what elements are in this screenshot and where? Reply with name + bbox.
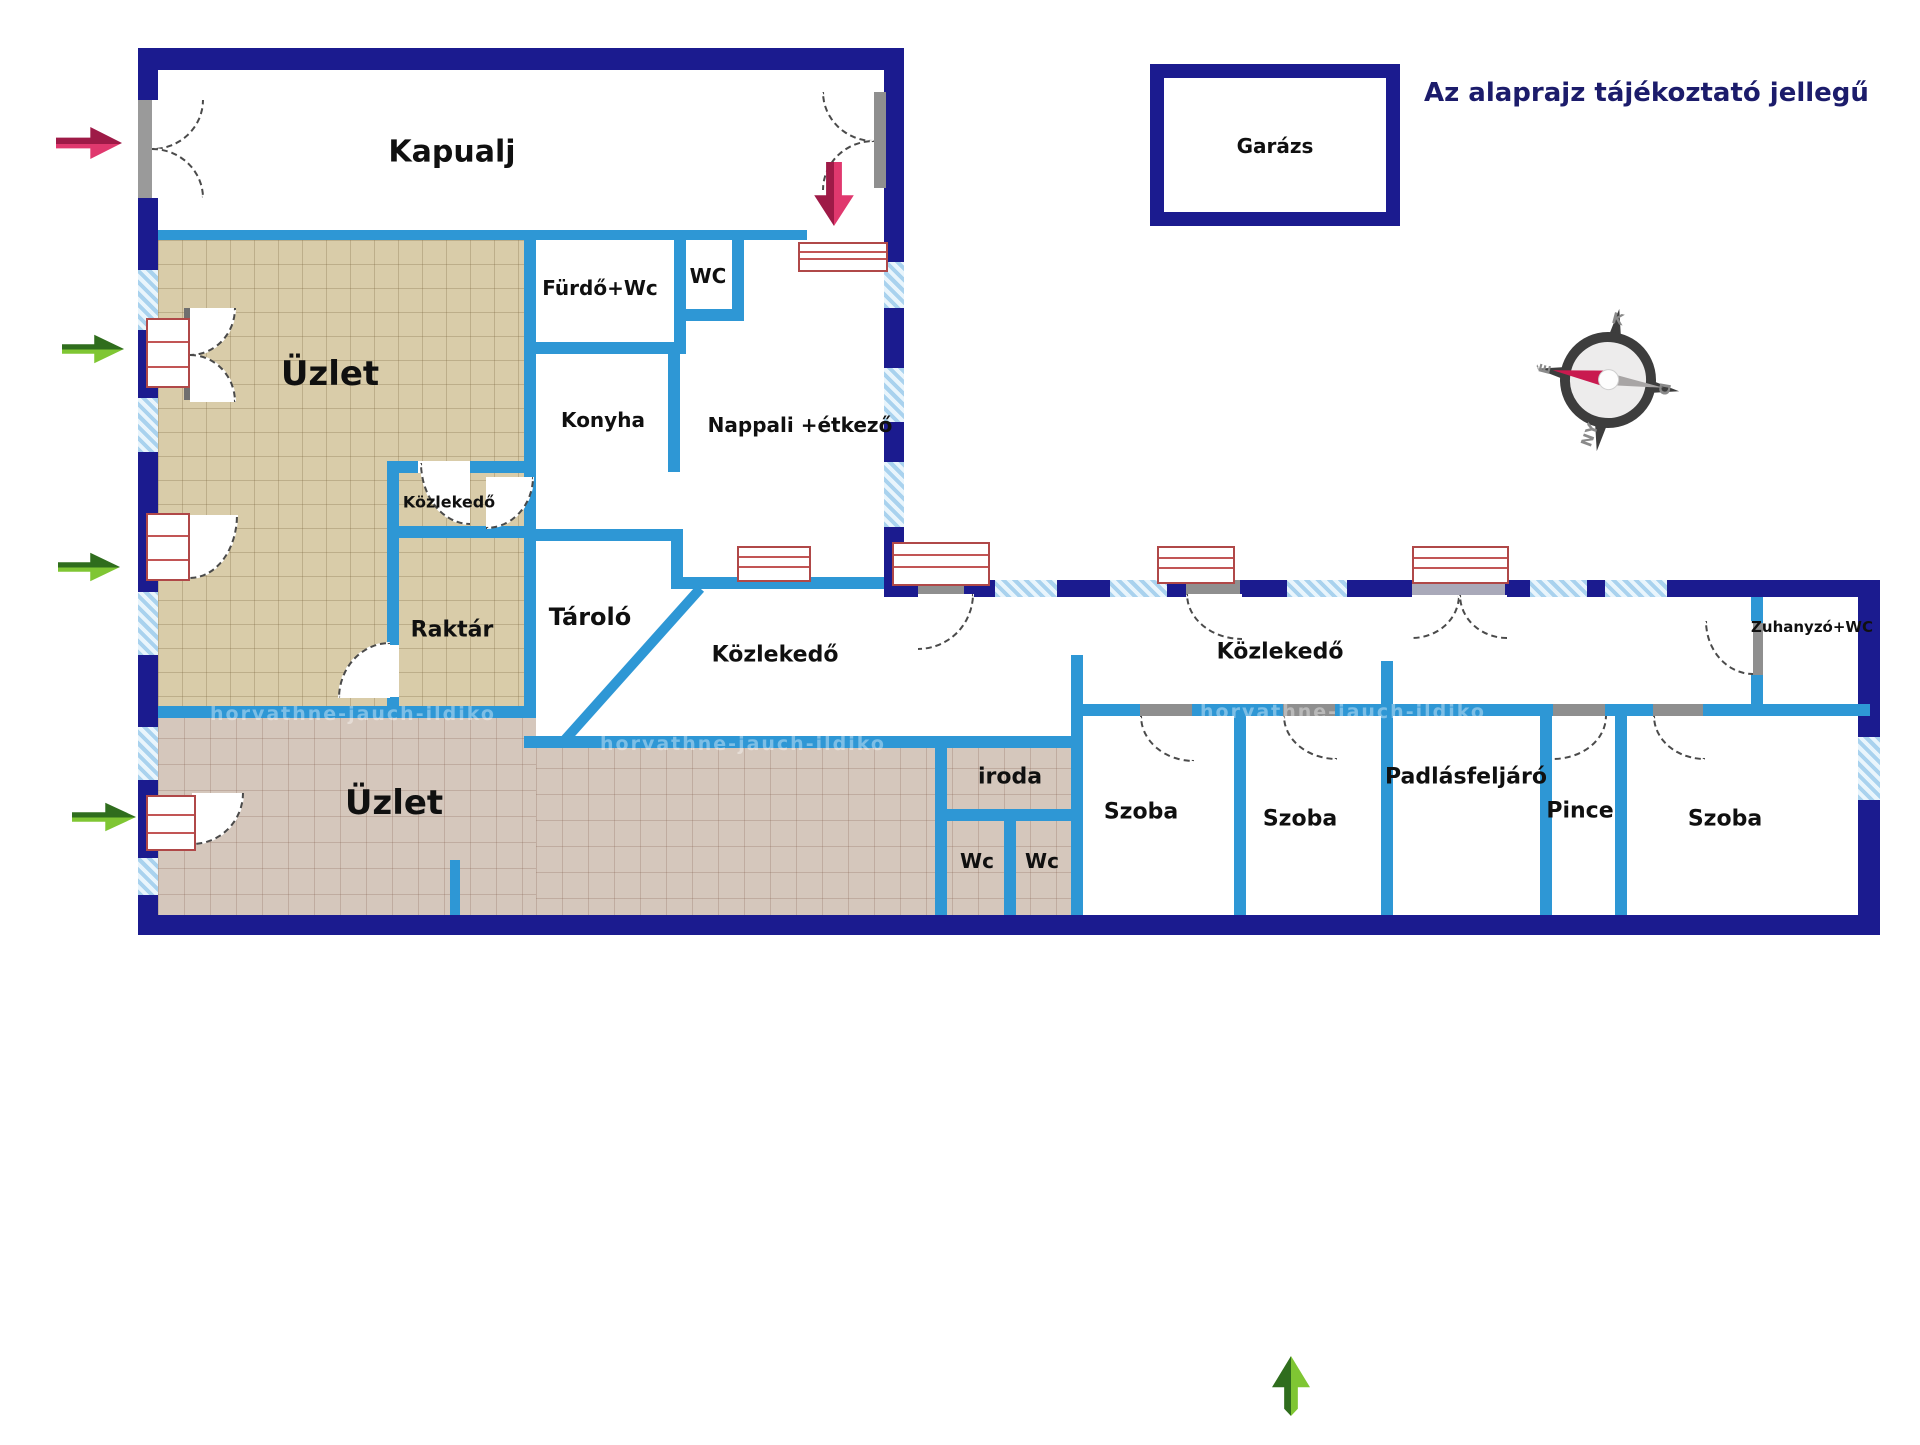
watermark: horvathne-jauch-ildiko xyxy=(210,703,496,725)
door-jamb xyxy=(1653,704,1703,716)
room-label-wc1: Wc xyxy=(960,849,994,873)
entrance-arrow-green-icon xyxy=(58,550,120,584)
watermark: horvathne-jauch-ildiko xyxy=(600,733,886,755)
window-symbol xyxy=(146,513,190,581)
window-hatch xyxy=(138,858,158,895)
wall-wc-divider xyxy=(1004,821,1016,915)
corridor-door xyxy=(1186,594,1242,640)
wall-room1-room2-divider xyxy=(1234,716,1246,915)
window-hatch xyxy=(1858,737,1880,800)
wall-hall-storage-divider xyxy=(387,526,536,538)
wall-left xyxy=(138,198,158,270)
room-label-kozlekedo-jobb: Közlekedő xyxy=(1217,640,1344,665)
room-label-szoba3: Szoba xyxy=(1688,807,1762,832)
room-label-szoba2: Szoba xyxy=(1263,807,1337,832)
radiator-symbol xyxy=(798,242,888,272)
room-label-wc2: Wc xyxy=(1025,849,1059,873)
north-arrow-green-icon xyxy=(1272,1356,1310,1416)
wall-bath-bottom xyxy=(536,342,686,354)
shower-door xyxy=(1705,621,1753,675)
gate-jamb xyxy=(138,100,152,198)
room-label-pince: Pince xyxy=(1546,799,1613,824)
wall-office-left xyxy=(935,742,947,915)
corridor-double-door-leaf xyxy=(1412,595,1460,639)
gate-door-leaf xyxy=(152,100,204,150)
window-symbol xyxy=(737,546,811,582)
wall-bottom xyxy=(138,915,1880,935)
compass-rose-icon xyxy=(1526,298,1691,463)
wall-storage-top xyxy=(524,529,683,541)
room-door xyxy=(1553,716,1607,760)
door-jamb xyxy=(1140,704,1192,716)
room-label-uzlet-also: Üzlet xyxy=(345,783,443,823)
window-hatch xyxy=(1605,580,1667,597)
room-label-tarolo: Tároló xyxy=(549,603,632,631)
room-label-wc-kis: WC xyxy=(690,264,727,288)
gate-door-leaf xyxy=(152,148,204,198)
window-hatch xyxy=(138,727,158,780)
entrance-arrow-green-icon xyxy=(72,800,136,834)
corridor-double-door-leaf xyxy=(1459,595,1507,639)
wall-bath-wc-divider xyxy=(674,240,686,354)
wall-office-right xyxy=(1071,655,1083,915)
wall-office-bottom xyxy=(935,809,1083,821)
room-label-furdo-wc: Fürdő+Wc xyxy=(542,276,658,300)
window-hatch xyxy=(884,462,904,527)
wall-leftwing-right xyxy=(884,308,904,368)
wall-shop-lower-stub xyxy=(450,860,460,915)
wall-wc-bottom xyxy=(686,309,744,321)
room-door xyxy=(1140,716,1194,762)
room-label-padlasfeljaro: Padlásfeljáró xyxy=(1385,765,1547,790)
window-symbol xyxy=(146,795,196,851)
watermark: horvathne-jauch-ildiko xyxy=(1200,701,1486,723)
corridor-door xyxy=(918,594,974,650)
window-hatch xyxy=(138,398,158,452)
plan-disclaimer-title: Az alaprajz tájékoztató jellegű xyxy=(1424,78,1869,108)
room-label-uzlet-felso: Üzlet xyxy=(281,354,379,394)
room-label-kozlekedo-kis: Közlekedő xyxy=(403,493,495,512)
wall-leftwing-right xyxy=(884,48,904,262)
room-label-konyha: Konyha xyxy=(561,408,645,432)
wall-shop-right xyxy=(524,230,536,718)
wall-corridor-top xyxy=(1057,580,1110,597)
entrance-arrow-pink-icon xyxy=(56,124,122,162)
room-label-iroda: iroda xyxy=(978,765,1042,790)
wall-corridor-top xyxy=(1587,580,1605,597)
wall-left xyxy=(138,48,158,100)
room-label-kapualj: Kapualj xyxy=(388,135,515,170)
window-symbol xyxy=(146,318,190,388)
window-hatch xyxy=(995,580,1057,597)
window-hatch xyxy=(1287,580,1347,597)
door-leaf xyxy=(822,92,874,142)
entrance-arrow-green-icon xyxy=(62,332,124,366)
floor-plan: K É D NY horvathne-jauch-ildiko horvathn… xyxy=(0,0,1920,1445)
wall-corridor-top xyxy=(1347,580,1412,597)
room-label-szoba1: Szoba xyxy=(1104,800,1178,825)
room-label-garazs: Garázs xyxy=(1237,134,1314,158)
room-label-zuhanyzo: Zuhanyzó+WC xyxy=(1751,618,1873,636)
wall-kitchen-right xyxy=(668,354,680,472)
wall-corridor-top xyxy=(1667,580,1880,597)
room-label-nappali: Nappali +étkező xyxy=(708,413,893,437)
room-label-raktar: Raktár xyxy=(411,618,494,643)
window-hatch xyxy=(138,592,158,655)
door-jamb xyxy=(874,92,886,188)
door-jamb xyxy=(1553,704,1605,716)
room-label-kozlekedo-bal: Közlekedő xyxy=(712,643,839,668)
wall-left xyxy=(138,655,158,727)
window-symbol xyxy=(1412,546,1509,584)
radiator-symbol xyxy=(892,542,990,586)
wall-top xyxy=(138,48,904,70)
wall-kapualj-bottom xyxy=(158,230,807,240)
room-door xyxy=(1653,716,1705,760)
wall-cellar-room3-divider xyxy=(1615,716,1627,915)
window-symbol xyxy=(1157,546,1235,584)
window-hatch xyxy=(1530,580,1587,597)
